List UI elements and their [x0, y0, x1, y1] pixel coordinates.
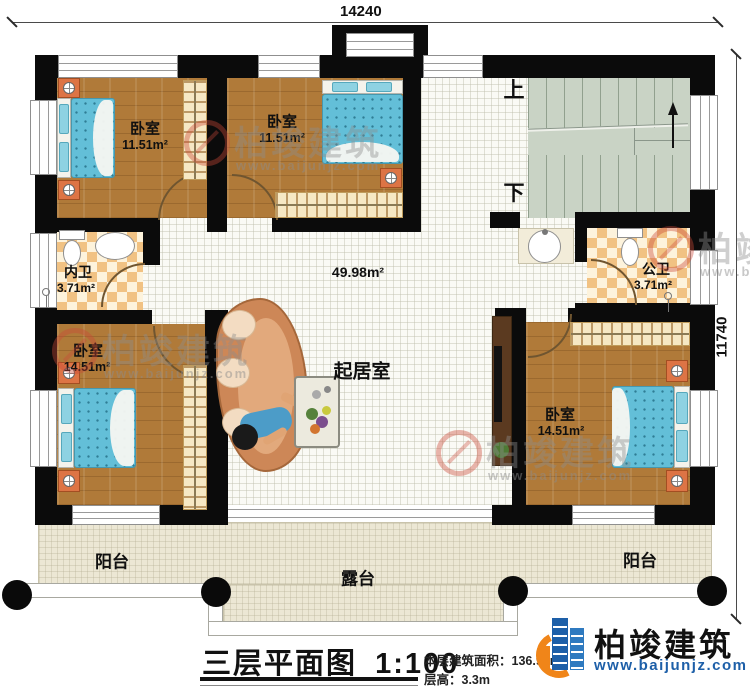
window [30, 390, 57, 467]
balcony-railing-left [14, 583, 216, 598]
room-label: 卧室 [545, 404, 575, 425]
nightstand [58, 470, 80, 492]
column [498, 576, 528, 606]
dimension-line-top [12, 22, 718, 23]
window [258, 55, 320, 78]
wall [35, 218, 160, 232]
wall [403, 55, 421, 232]
stairs-upper-flight [528, 78, 690, 128]
logo-building-icon [570, 628, 584, 670]
bed [57, 98, 115, 178]
terrace-floor [223, 585, 505, 623]
wardrobe [570, 322, 690, 346]
lamp-icon [63, 184, 75, 196]
terrace-railing-bottom [208, 621, 518, 636]
room-label: 卧室 [73, 340, 103, 361]
window [30, 233, 57, 308]
stairs-lower-flight [528, 155, 690, 218]
wall [690, 190, 715, 250]
wall [35, 310, 152, 324]
room-area: 3.71m² [57, 281, 95, 295]
bed [322, 80, 403, 164]
lamp-icon [671, 365, 683, 377]
bay-window [346, 33, 414, 57]
balcony-floor [38, 522, 712, 585]
nightstand [380, 168, 402, 188]
plant [493, 442, 509, 458]
title-underline-thin [200, 685, 418, 686]
floor-plan: 卧室 11.51m² 卧室 11.51m² 内卫 3.71m² 公卫 3.71m… [0, 0, 750, 693]
terrace-label: 露台 [341, 565, 375, 590]
room-area: 11.51m² [122, 138, 168, 152]
floor-drain [664, 292, 672, 300]
balcony-right-label: 阳台 [623, 547, 657, 572]
wall [143, 218, 160, 265]
nightstand [58, 180, 80, 200]
column [697, 576, 727, 606]
wall [512, 308, 526, 510]
dimension-width-label: 14240 [340, 3, 382, 20]
room-area: 14.51m² [538, 424, 585, 438]
lamp-icon [63, 82, 75, 94]
table-dish [324, 386, 331, 393]
flowers [322, 406, 331, 415]
dimension-line-right [736, 55, 737, 620]
dimension-height-label: 11740 [714, 317, 731, 358]
stairs-down-label: 下 [504, 177, 525, 207]
wall [35, 55, 57, 100]
room-label: 起居室 [333, 357, 390, 384]
wall [490, 212, 520, 228]
logo-building-icon [552, 618, 568, 670]
room-area: 3.71m² [634, 278, 672, 292]
person-head [232, 424, 258, 450]
floor-height-note: 层高：3.3m [424, 669, 490, 688]
floor-drain-stem [46, 296, 47, 308]
room-label: 卧室 [130, 118, 160, 139]
title-underline [200, 677, 418, 681]
wall [35, 505, 72, 525]
flowers [310, 424, 320, 434]
wall [690, 55, 715, 95]
room-area: 11.51m² [259, 131, 305, 145]
logo-building-icon [540, 646, 550, 668]
wall [575, 212, 587, 262]
tv [494, 346, 502, 422]
floor-drain [42, 288, 50, 296]
wall [575, 212, 690, 228]
table-dish [312, 390, 321, 399]
stairs-up-label: 上 [504, 74, 525, 104]
lamp-icon [671, 475, 683, 487]
drawing-title-text: 三层平面图 [202, 648, 357, 680]
bed [612, 386, 690, 468]
stairs-landing-line-h [634, 140, 690, 141]
stairs-landing-line-v [634, 128, 635, 155]
wall [492, 505, 572, 525]
window [58, 55, 178, 78]
room-area: 14.51m² [64, 360, 111, 374]
toilet [59, 230, 85, 240]
sliding-door [572, 505, 655, 525]
living-area-label: 49.98m² [332, 264, 384, 280]
living-balcony-opening [228, 509, 492, 518]
wall [568, 308, 690, 322]
wall [690, 305, 715, 390]
toilet [617, 228, 643, 238]
faucet [542, 229, 548, 235]
nightstand [58, 78, 80, 98]
balcony-left-label: 阳台 [95, 548, 129, 573]
lamp-icon [63, 475, 75, 487]
nightstand [666, 360, 688, 382]
wardrobe [183, 365, 207, 510]
wall [272, 218, 421, 232]
sink [95, 232, 135, 260]
sliding-door [72, 505, 160, 525]
window [690, 250, 718, 305]
wardrobe [275, 192, 403, 218]
room-label: 卧室 [267, 111, 297, 132]
brand-logo [536, 616, 592, 684]
lamp-icon [385, 172, 397, 184]
stairs-arrow-stem [672, 114, 674, 148]
wall [207, 55, 227, 232]
balcony-railing-right [512, 583, 713, 598]
room-label: 内卫 [64, 262, 92, 282]
drawing-title: 三层平面图 1:100 [202, 640, 459, 682]
brand-website: www.baijunjz.com [594, 657, 747, 674]
room-label: 公卫 [642, 259, 670, 279]
window [690, 390, 718, 467]
wall [655, 505, 715, 525]
toilet-bowl [621, 238, 639, 266]
window [30, 100, 57, 175]
window [690, 95, 718, 190]
bed [58, 388, 136, 468]
sofa-cushion [216, 358, 250, 388]
wardrobe [183, 80, 207, 180]
column [201, 577, 231, 607]
column [2, 580, 32, 610]
nightstand [666, 470, 688, 492]
window [423, 55, 483, 78]
floor-drain-stem [668, 300, 669, 312]
